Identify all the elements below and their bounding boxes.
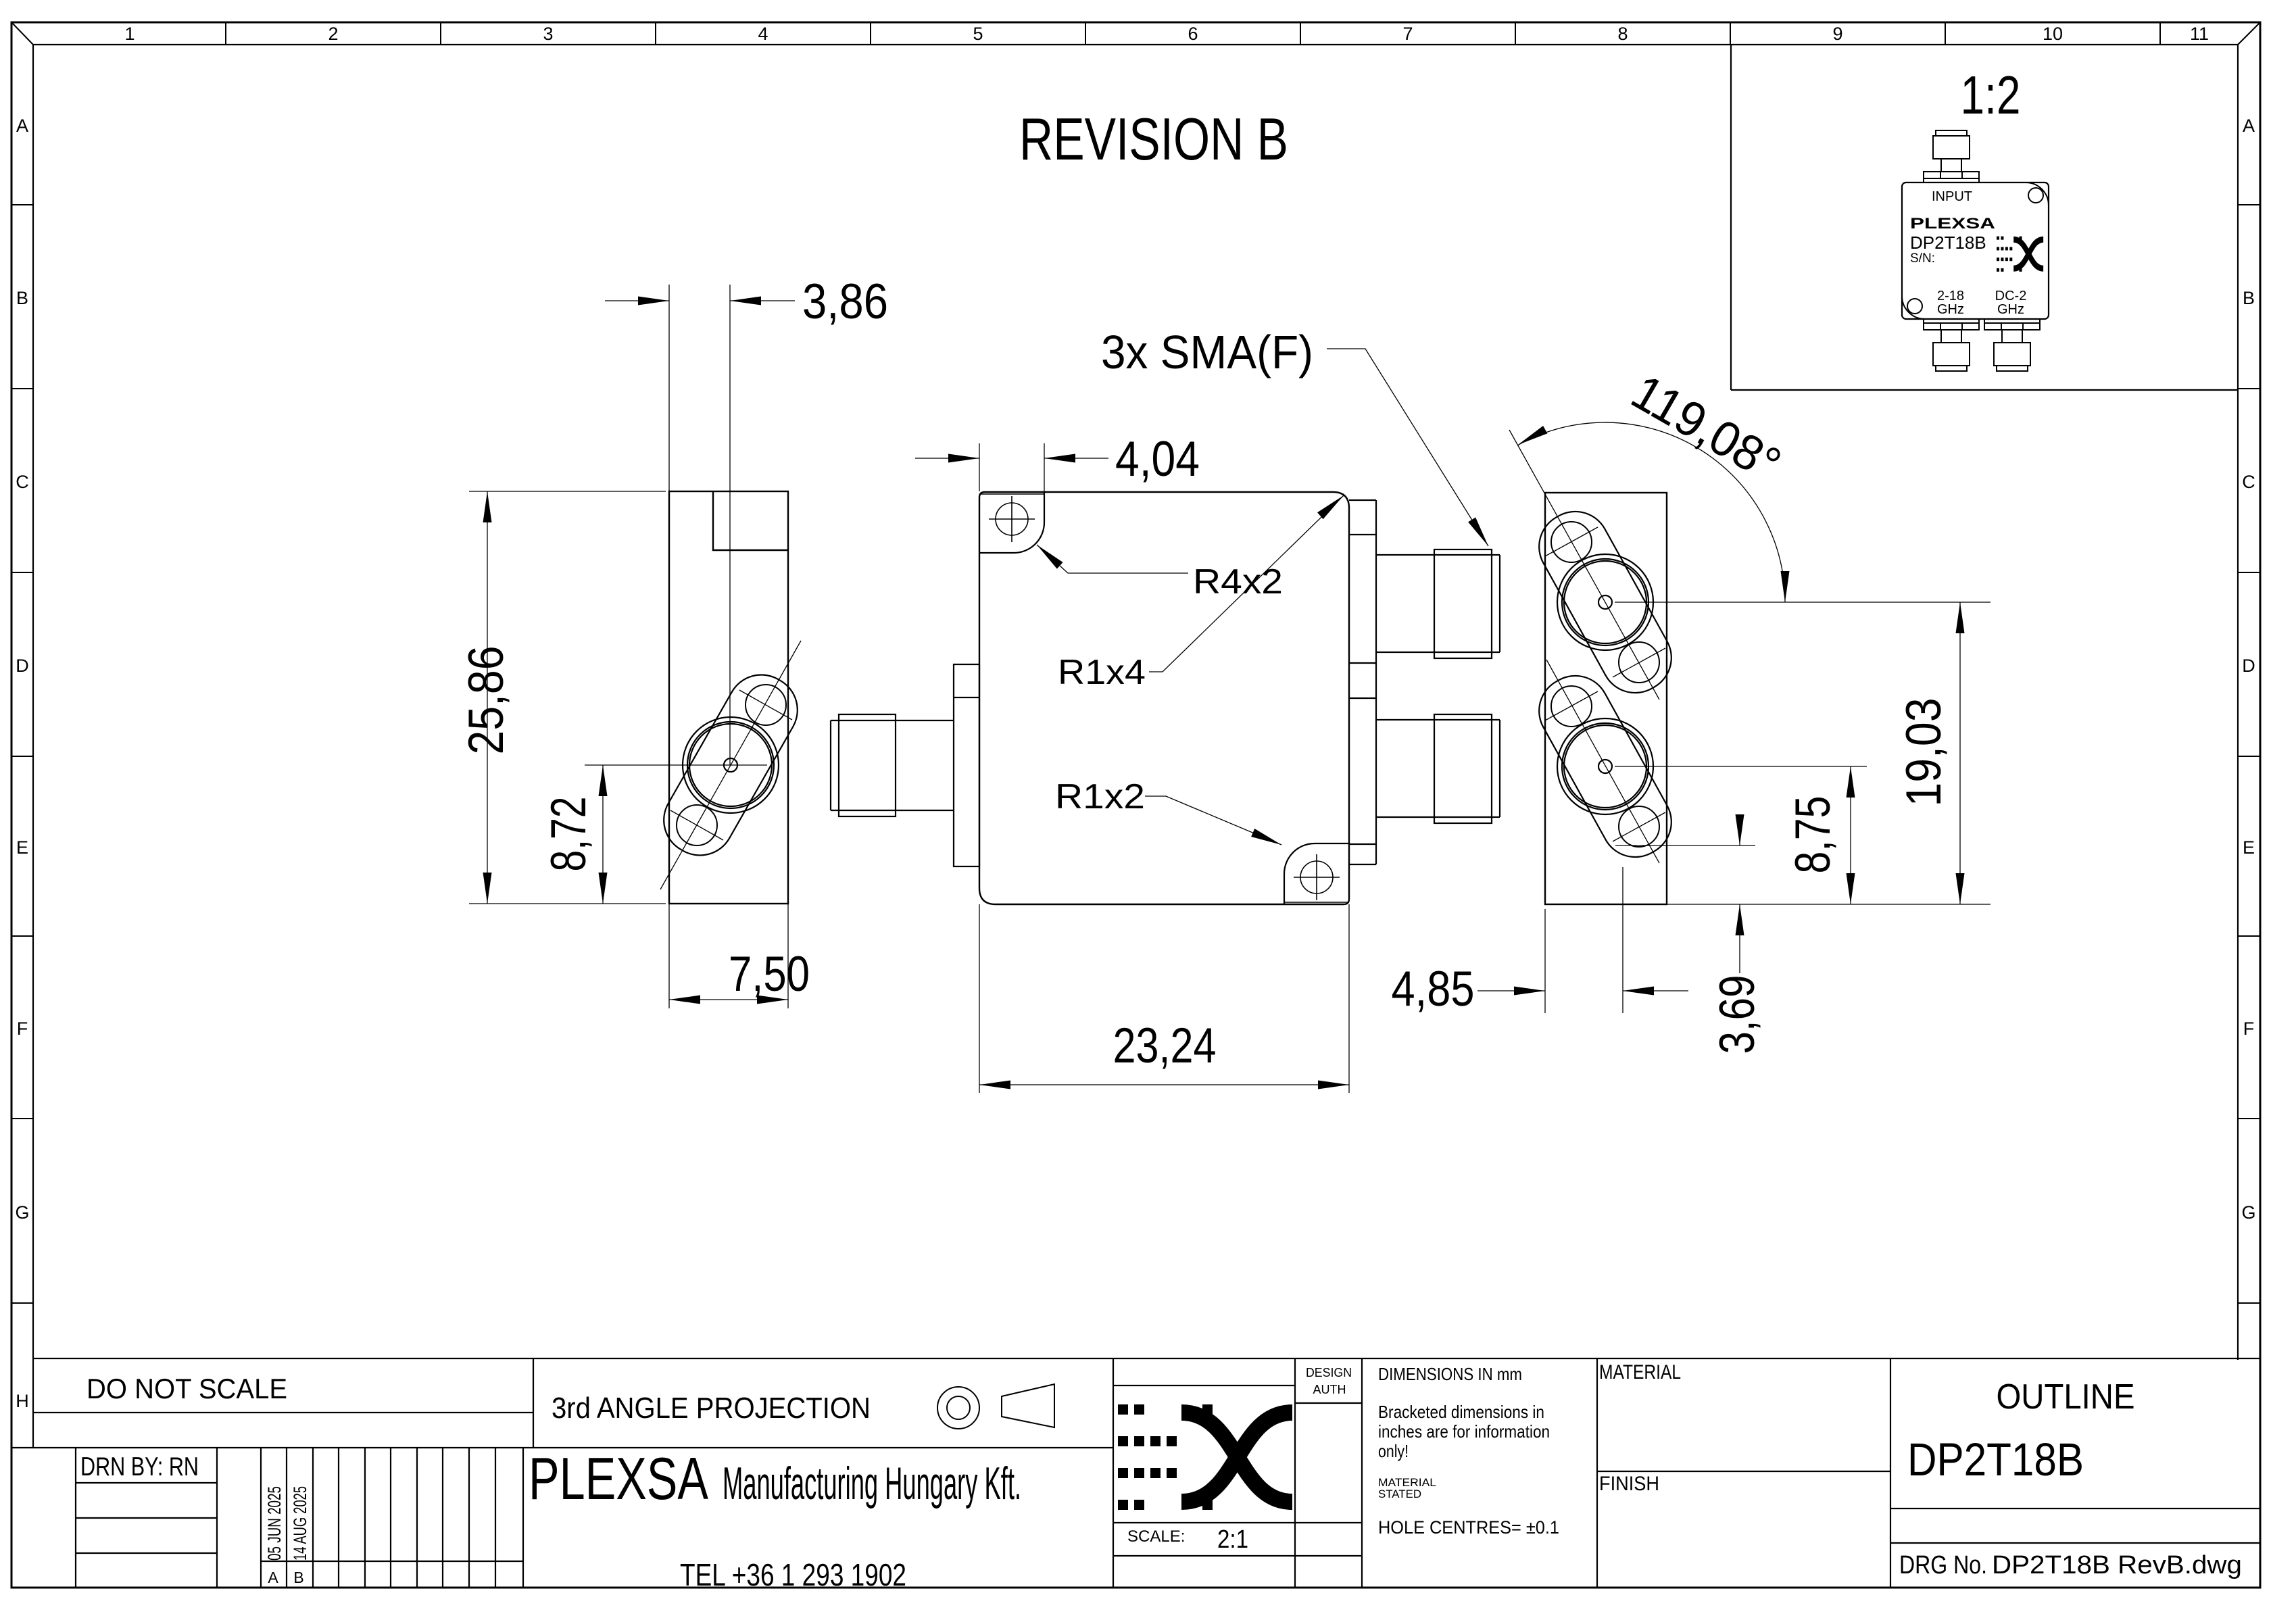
svg-text:B: B [2243,288,2255,308]
svg-text:R1x2: R1x2 [1055,777,1145,816]
svg-text:05 JUN 2025: 05 JUN 2025 [264,1486,285,1561]
svg-text:only!: only! [1378,1441,1409,1461]
svg-text:Manufacturing Hungary Kft.: Manufacturing Hungary Kft. [723,1458,1021,1509]
svg-text:23,24: 23,24 [1113,1019,1217,1073]
svg-text:8: 8 [1617,24,1628,44]
svg-text:DRN BY: RN: DRN BY: RN [80,1452,199,1481]
svg-text:PLEXSA: PLEXSA [1910,215,1995,232]
svg-text:OUTLINE: OUTLINE [1997,1377,2135,1417]
svg-text:11: 11 [2190,24,2209,44]
svg-text:inches are for information: inches are for information [1378,1421,1550,1442]
svg-text:4,04: 4,04 [1115,432,1200,487]
svg-text:F: F [2243,1019,2255,1039]
svg-text:R1x4: R1x4 [1058,653,1146,692]
svg-text:B: B [16,288,28,308]
svg-text:2-18: 2-18 [1937,289,1964,303]
svg-text:14 AUG 2025: 14 AUG 2025 [290,1486,310,1561]
svg-text:E: E [2243,837,2255,858]
svg-text:DP2T18B RevB.dwg: DP2T18B RevB.dwg [1992,1551,2242,1579]
svg-text:FINISH: FINISH [1599,1473,1659,1495]
svg-text:D: D [2242,656,2255,676]
svg-text:PLEXSA: PLEXSA [529,1445,708,1512]
svg-text:STATED: STATED [1378,1488,1421,1500]
svg-text:TEL +36 1 293 1902: TEL +36 1 293 1902 [680,1557,906,1592]
svg-text:DRG No.: DRG No. [1899,1551,1987,1579]
svg-text:4: 4 [758,24,768,44]
svg-text:8,72: 8,72 [541,797,596,872]
svg-text:Bracketed dimensions in: Bracketed dimensions in [1378,1402,1544,1422]
svg-text:MATERIAL: MATERIAL [1599,1361,1681,1383]
svg-text:10: 10 [2043,24,2063,44]
svg-text:7: 7 [1402,24,1413,44]
svg-text:GHz: GHz [1937,302,1964,317]
svg-text:9: 9 [1832,24,1842,44]
svg-text:AUTH: AUTH [1313,1383,1346,1396]
svg-text:A: A [16,116,28,136]
svg-text:C: C [16,472,29,492]
svg-text:G: G [15,1202,29,1223]
svg-text:3,86: 3,86 [802,274,888,329]
svg-text:HOLE CENTRES= ±0.1: HOLE CENTRES= ±0.1 [1378,1517,1559,1538]
svg-text:DC-2: DC-2 [1995,289,2027,303]
svg-text:S/N:: S/N: [1910,251,1935,266]
svg-text:1: 1 [124,24,135,44]
svg-text:3: 3 [543,24,553,44]
svg-text:H: H [16,1391,29,1411]
svg-text:1:2: 1:2 [1961,65,2021,125]
svg-text:E: E [16,837,28,858]
svg-text:INPUT: INPUT [1932,189,1972,204]
svg-text:DP2T18B: DP2T18B [1907,1433,2084,1486]
svg-text:REVISION B: REVISION B [1019,105,1288,172]
svg-text:DIMENSIONS IN mm: DIMENSIONS IN mm [1378,1364,1522,1384]
svg-text:G: G [2241,1202,2255,1223]
svg-text:A: A [2243,116,2255,136]
svg-text:5: 5 [973,24,983,44]
svg-text:GHz: GHz [1997,302,2024,317]
svg-text:3,69: 3,69 [1710,975,1765,1054]
svg-text:SCALE:: SCALE: [1127,1527,1185,1546]
svg-text:25,86: 25,86 [459,646,514,755]
svg-text:D: D [16,656,29,676]
svg-text:7,50: 7,50 [729,947,810,1002]
svg-text:DO NOT SCALE: DO NOT SCALE [87,1373,287,1404]
svg-text:19,03: 19,03 [1897,698,1951,807]
svg-text:C: C [2242,472,2255,492]
svg-text:3rd ANGLE PROJECTION: 3rd ANGLE PROJECTION [552,1392,871,1425]
svg-text:DP2T18B: DP2T18B [1910,232,1986,253]
svg-text:6: 6 [1188,24,1198,44]
svg-text:3x SMA(F): 3x SMA(F) [1101,326,1313,378]
svg-text:A: A [268,1569,278,1586]
svg-text:2: 2 [328,24,338,44]
svg-text:F: F [17,1019,28,1039]
svg-text:8,75: 8,75 [1786,796,1840,874]
svg-text:4,85: 4,85 [1392,962,1475,1016]
svg-text:DESIGN: DESIGN [1306,1366,1352,1379]
svg-text:2:1: 2:1 [1217,1525,1248,1554]
svg-text:B: B [293,1569,303,1586]
